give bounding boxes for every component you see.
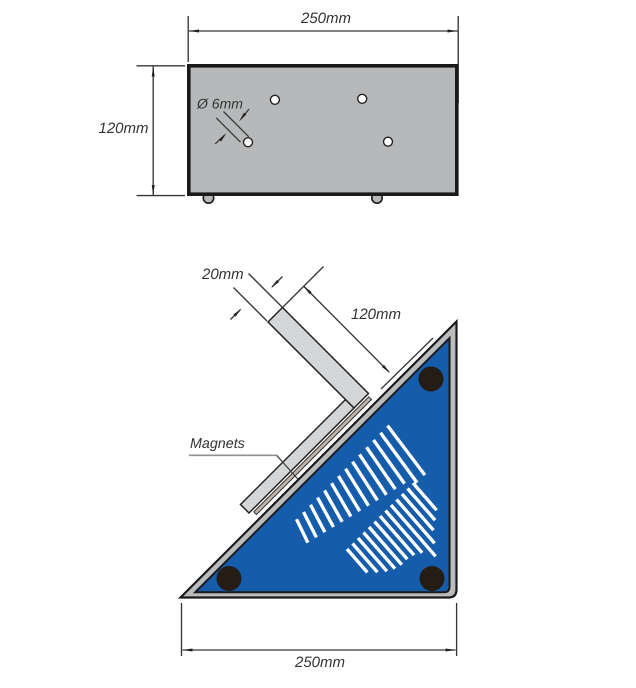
svg-text:250mm: 250mm	[294, 654, 345, 671]
svg-text:Ø 6mm: Ø 6mm	[196, 96, 243, 112]
svg-text:120mm: 120mm	[98, 120, 148, 137]
svg-text:250mm: 250mm	[300, 10, 351, 27]
svg-text:120mm: 120mm	[351, 306, 401, 323]
svg-text:20mm: 20mm	[201, 266, 244, 283]
svg-text:Magnets: Magnets	[190, 436, 245, 452]
